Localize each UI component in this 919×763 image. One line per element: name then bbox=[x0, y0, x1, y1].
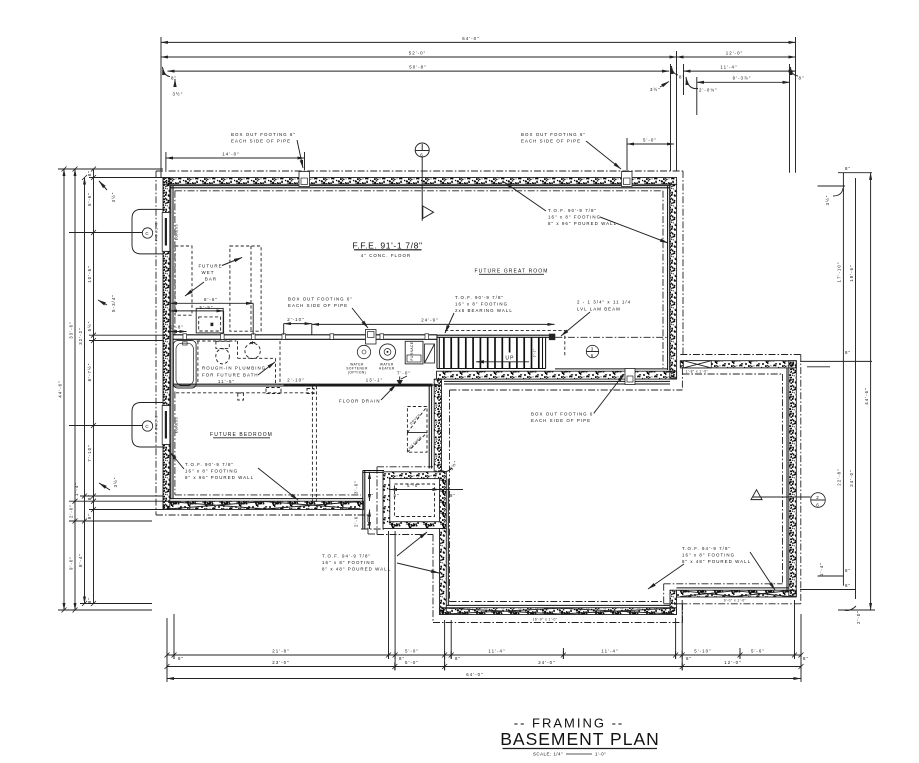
svg-text:16" x 8" FOOTING: 16" x 8" FOOTING bbox=[185, 469, 238, 474]
svg-text:9'-0": 9'-0" bbox=[69, 556, 74, 570]
svg-text:2x6 BEARING WALL: 2x6 BEARING WALL bbox=[455, 308, 513, 313]
svg-text:16'-0" x 1'-0": 16'-0" x 1'-0" bbox=[533, 618, 558, 622]
svg-text:HEATER: HEATER bbox=[379, 367, 395, 371]
svg-text:5'-0": 5'-0" bbox=[643, 138, 657, 143]
svg-text:6: 6 bbox=[591, 353, 595, 358]
svg-text:3: 3 bbox=[591, 347, 595, 352]
svg-text:T.O.F. 90'-9 7/8": T.O.F. 90'-9 7/8" bbox=[185, 462, 234, 467]
svg-text:12'-0": 12'-0" bbox=[724, 660, 742, 665]
svg-text:2: 2 bbox=[816, 495, 820, 500]
svg-text:8'-7½": 8'-7½" bbox=[87, 363, 92, 382]
svg-text:10'-5": 10'-5" bbox=[87, 265, 92, 283]
svg-text:DRYER: DRYER bbox=[409, 413, 422, 426]
svg-text:5'-10": 5'-10" bbox=[694, 649, 712, 654]
svg-text:BOX OUT FOOTING 6": BOX OUT FOOTING 6" bbox=[231, 132, 296, 137]
svg-text:4" CONC. FLOOR: 4" CONC. FLOOR bbox=[361, 253, 411, 258]
svg-text:24'-0": 24'-0" bbox=[849, 469, 854, 487]
svg-text:3½": 3½" bbox=[111, 192, 116, 203]
svg-text:16" x 8" FOOTING: 16" x 8" FOOTING bbox=[682, 553, 735, 558]
svg-text:21'-8": 21'-8" bbox=[272, 649, 290, 654]
svg-text:8" x 48" POURED WALL: 8" x 48" POURED WALL bbox=[322, 567, 391, 572]
svg-text:2'-0": 2'-0" bbox=[354, 513, 359, 527]
svg-text:8": 8" bbox=[368, 493, 374, 498]
svg-text:2'-0⅛": 2'-0⅛" bbox=[699, 88, 718, 93]
svg-text:3½": 3½" bbox=[113, 477, 118, 488]
svg-text:BOX OUT FOOTING 6": BOX OUT FOOTING 6" bbox=[521, 132, 586, 137]
svg-text:3'-1": 3'-1" bbox=[533, 348, 537, 357]
svg-text:64'-0": 64'-0" bbox=[466, 672, 484, 677]
svg-text:FURNACE: FURNACE bbox=[410, 341, 414, 360]
svg-text:16" x 8" FOOTING: 16" x 8" FOOTING bbox=[548, 215, 601, 220]
svg-text:18'-6": 18'-6" bbox=[849, 264, 854, 282]
svg-text:5'-5": 5'-5" bbox=[200, 305, 214, 310]
svg-text:14'-0": 14'-0" bbox=[222, 152, 240, 157]
svg-text:23'-0": 23'-0" bbox=[272, 660, 290, 665]
svg-text:11'-4": 11'-4" bbox=[601, 649, 618, 654]
svg-text:1'-8" x 1'-0": 1'-8" x 1'-0" bbox=[686, 370, 709, 374]
svg-text:FUTURE: FUTURE bbox=[198, 264, 222, 269]
svg-text:11'-4": 11'-4" bbox=[720, 65, 737, 70]
svg-text:7'-10": 7'-10" bbox=[87, 444, 92, 462]
svg-text:8" x 96" POURED WALL: 8" x 96" POURED WALL bbox=[185, 475, 254, 480]
svg-text:BAR: BAR bbox=[205, 277, 217, 282]
svg-text:LVL LAM BEAM: LVL LAM BEAM bbox=[577, 307, 621, 312]
svg-text:5-3/4": 5-3/4" bbox=[111, 294, 116, 312]
svg-text:T.O.F. 94'-9 7/8": T.O.F. 94'-9 7/8" bbox=[682, 546, 731, 551]
svg-text:8": 8" bbox=[686, 656, 692, 661]
svg-text:3½": 3½" bbox=[173, 92, 184, 97]
svg-text:T.O.F. 90'-9 7/8": T.O.F. 90'-9 7/8" bbox=[455, 295, 504, 300]
svg-text:T.O.F. 90'-9 7/8": T.O.F. 90'-9 7/8" bbox=[548, 208, 597, 213]
svg-text:EACH SIDE OF PIPE: EACH SIDE OF PIPE bbox=[288, 303, 348, 308]
svg-text:13'-1": 13'-1" bbox=[366, 378, 384, 383]
svg-text:8": 8" bbox=[845, 166, 851, 171]
svg-text:5'-0": 5'-0" bbox=[405, 660, 419, 665]
svg-text:8": 8" bbox=[87, 494, 92, 500]
svg-text:5'-0": 5'-0" bbox=[407, 483, 421, 488]
svg-text:2'-10": 2'-10" bbox=[287, 317, 305, 322]
svg-text:BASEMENT PLAN: BASEMENT PLAN bbox=[500, 729, 660, 749]
svg-text:12'-0": 12'-0" bbox=[726, 51, 744, 56]
svg-text:5'-0": 5'-0" bbox=[405, 649, 419, 654]
svg-text:(OPTION): (OPTION) bbox=[348, 371, 366, 375]
svg-text:1'-4": 1'-4" bbox=[819, 562, 824, 576]
svg-text:C: C bbox=[145, 424, 149, 429]
svg-text:T.O.F. 94'-9 7/8": T.O.F. 94'-9 7/8" bbox=[322, 554, 371, 559]
svg-text:22'-8": 22'-8" bbox=[837, 468, 842, 486]
svg-text:4'-0 x 2'-0: 4'-0 x 2'-0 bbox=[155, 415, 159, 434]
svg-text:11'-4": 11'-4" bbox=[488, 649, 505, 654]
svg-text:5½": 5½" bbox=[87, 321, 92, 332]
svg-text:2'-0": 2'-0" bbox=[69, 504, 74, 518]
svg-text:EACH SIDE OF PIPE: EACH SIDE OF PIPE bbox=[231, 139, 291, 144]
svg-text:9'-3⅞": 9'-3⅞" bbox=[733, 75, 752, 80]
svg-text:44'-6": 44'-6" bbox=[58, 380, 63, 398]
svg-text:8": 8" bbox=[845, 583, 851, 588]
svg-text:8": 8" bbox=[845, 568, 851, 573]
svg-text:8": 8" bbox=[87, 597, 92, 603]
svg-text:6: 6 bbox=[816, 503, 820, 508]
svg-text:8": 8" bbox=[845, 350, 851, 355]
svg-text:FUTURE GREAT ROOM: FUTURE GREAT ROOM bbox=[474, 269, 548, 275]
svg-text:WET: WET bbox=[202, 270, 215, 275]
svg-text:8" x 48" POURED WALL: 8" x 48" POURED WALL bbox=[682, 559, 751, 564]
svg-text:16" x 8" FOOTING: 16" x 8" FOOTING bbox=[455, 302, 508, 307]
svg-text:3½": 3½" bbox=[650, 87, 661, 92]
svg-text:EACH SIDE OF PIPE: EACH SIDE OF PIPE bbox=[521, 139, 581, 144]
svg-text:C: C bbox=[145, 231, 149, 236]
svg-text:44'-6": 44'-6" bbox=[864, 387, 869, 405]
svg-text:8": 8" bbox=[803, 656, 809, 661]
svg-text:8": 8" bbox=[171, 76, 177, 81]
svg-text:3½": 3½" bbox=[825, 195, 830, 206]
svg-text:F.F.E. 91'-1 7/8": F.F.E. 91'-1 7/8" bbox=[352, 240, 422, 250]
svg-text:2 - 1 3/4" x 11 1/4: 2 - 1 3/4" x 11 1/4 bbox=[577, 300, 631, 305]
svg-text:64'-0": 64'-0" bbox=[462, 36, 480, 41]
svg-text:EGRESS: EGRESS bbox=[175, 223, 179, 240]
svg-text:50'-8": 50'-8" bbox=[409, 65, 427, 70]
svg-text:8": 8" bbox=[450, 493, 456, 498]
svg-text:FLOOR DRAIN: FLOOR DRAIN bbox=[339, 399, 381, 404]
svg-text:8": 8" bbox=[799, 76, 805, 81]
svg-text:33'-6": 33'-6" bbox=[69, 321, 74, 339]
svg-text:8" x 96" POURED WALL: 8" x 96" POURED WALL bbox=[548, 221, 617, 226]
svg-text:BOX OUT FOOTING 6": BOX OUT FOOTING 6" bbox=[531, 412, 596, 417]
svg-text:2'-0": 2'-0" bbox=[856, 610, 861, 624]
svg-text:BOX OUT FOOTING 6": BOX OUT FOOTING 6" bbox=[288, 297, 353, 302]
svg-text:EGRESS: EGRESS bbox=[175, 416, 179, 433]
svg-text:8": 8" bbox=[394, 493, 400, 498]
svg-text:UP: UP bbox=[505, 356, 514, 362]
svg-text:24'-9": 24'-9" bbox=[421, 318, 439, 323]
svg-text:4'-0 x 2'-0: 4'-0 x 2'-0 bbox=[155, 222, 159, 241]
svg-text:24'-0": 24'-0" bbox=[538, 660, 556, 665]
svg-text:6: 6 bbox=[420, 153, 424, 158]
svg-text:5'-6": 5'-6" bbox=[751, 649, 765, 654]
svg-text:7'-0": 7'-0" bbox=[397, 371, 411, 376]
svg-text:1'-8": 1'-8" bbox=[170, 325, 184, 330]
svg-text:EACH SIDE OF PIPE: EACH SIDE OF PIPE bbox=[531, 418, 591, 423]
svg-text:FUTURE BEDROOM: FUTURE BEDROOM bbox=[210, 432, 273, 438]
svg-text:8'-4": 8'-4" bbox=[78, 553, 83, 567]
svg-text:8": 8" bbox=[178, 656, 184, 661]
svg-text:32'-2": 32'-2" bbox=[78, 327, 83, 345]
svg-text:16" x 8" FOOTING: 16" x 8" FOOTING bbox=[322, 560, 375, 565]
svg-text:17'-10": 17'-10" bbox=[837, 262, 842, 283]
svg-text:1'-0": 1'-0" bbox=[595, 752, 606, 757]
svg-text:52'-0": 52'-0" bbox=[409, 51, 427, 56]
svg-text:8'-6": 8'-6" bbox=[204, 297, 218, 302]
svg-text:2'-10": 2'-10" bbox=[287, 378, 305, 383]
svg-text:SCALE: 1/4": SCALE: 1/4" bbox=[533, 752, 563, 757]
svg-text:9'-0" x 1'-0": 9'-0" x 1'-0" bbox=[724, 599, 747, 603]
svg-text:WASHER: WASHER bbox=[408, 435, 423, 450]
svg-text:ROUGH-IN PLUMBING: ROUGH-IN PLUMBING bbox=[202, 366, 266, 371]
svg-text:1'-4": 1'-4" bbox=[74, 482, 79, 496]
svg-text:8": 8" bbox=[455, 656, 461, 661]
svg-text:FOR FUTURE BATH: FOR FUTURE BATH bbox=[202, 373, 259, 378]
svg-text:11'-5": 11'-5" bbox=[218, 379, 235, 384]
svg-text:5'-6": 5'-6" bbox=[87, 192, 92, 206]
svg-text:8": 8" bbox=[679, 75, 685, 80]
svg-text:3'-0": 3'-0" bbox=[354, 480, 359, 494]
svg-text:8": 8" bbox=[87, 513, 92, 519]
